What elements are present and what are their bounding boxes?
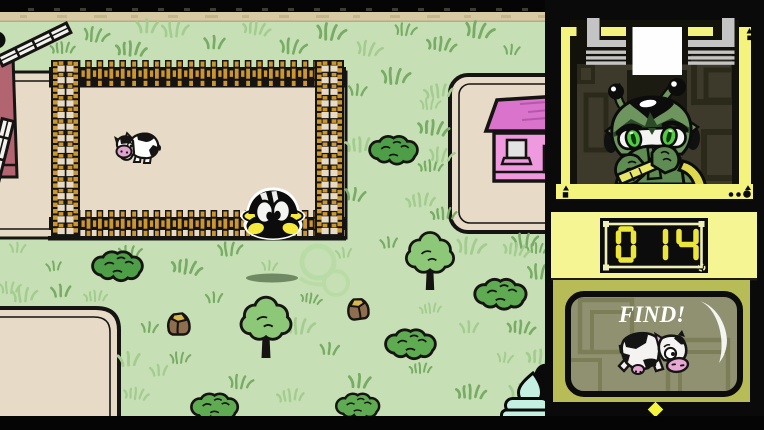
svg-text:FIND!: FIND! xyxy=(618,302,685,327)
